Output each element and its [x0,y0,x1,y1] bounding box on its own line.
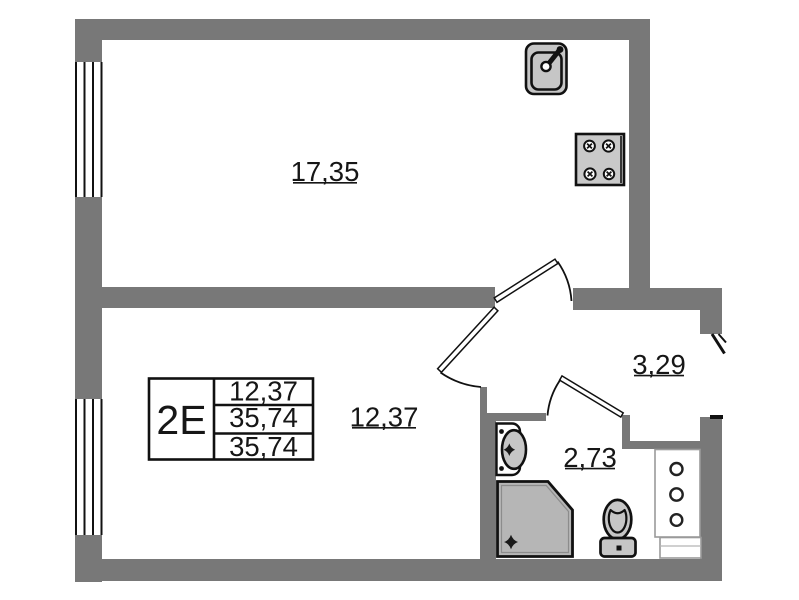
svg-text:35,74: 35,74 [229,402,298,433]
svg-text:35,74: 35,74 [229,431,298,462]
svg-text:2E: 2E [156,397,206,443]
